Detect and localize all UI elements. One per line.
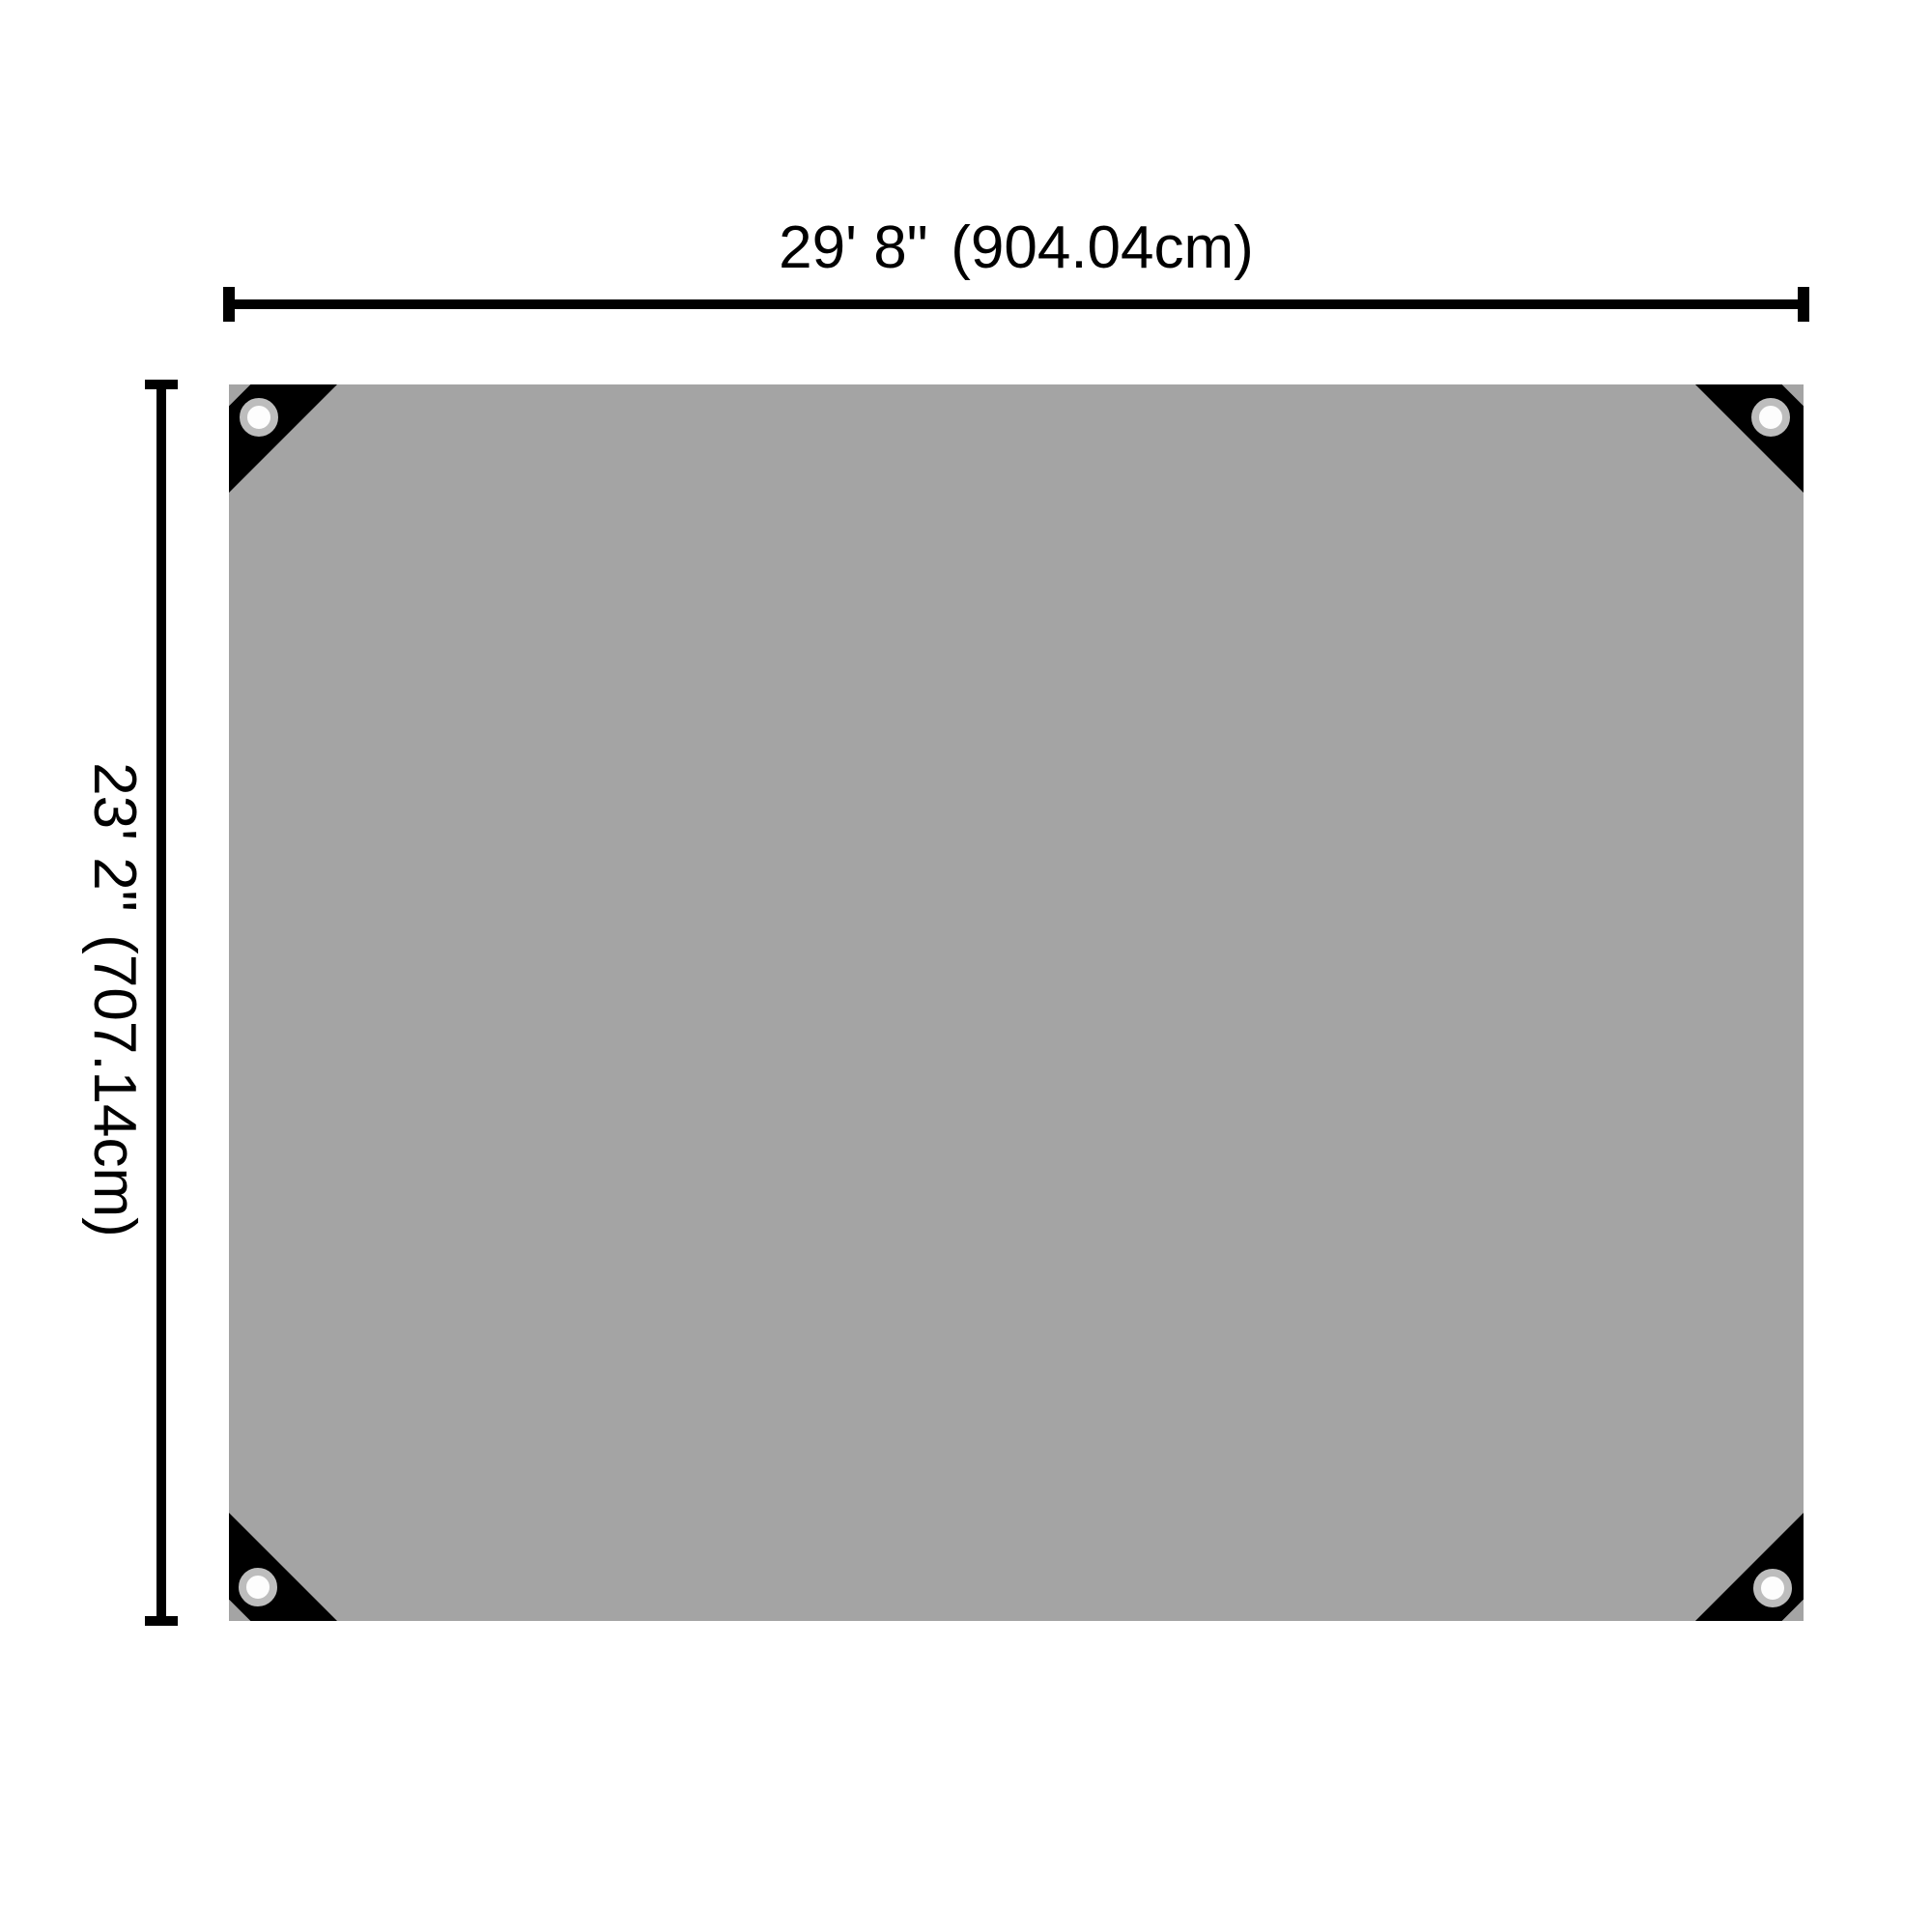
tarp-dimension-diagram: { "theme": { "bg": "#ffffff", "ink": "#0… [0, 0, 1932, 1932]
tarp-rectangle [229, 384, 1804, 1621]
height-imperial-value: 23' 2" [81, 762, 148, 912]
width-imperial-value: 29' 8" [779, 214, 928, 281]
width-dimension-label: 29' 8"(904.04cm) [229, 218, 1804, 278]
width-dimension-tick-left [223, 287, 235, 322]
grommet-icon-top-right [1751, 398, 1790, 437]
grommet-icon-top-left [240, 398, 278, 437]
grommet-icon-bottom-right [1753, 1569, 1792, 1607]
height-metric-value: (707.14cm) [81, 934, 148, 1237]
height-dimension-line [156, 384, 166, 1621]
width-dimension-tick-right [1798, 287, 1809, 322]
height-dimension-tick-top [145, 380, 178, 389]
width-metric-value: (904.04cm) [951, 214, 1254, 281]
height-dimension-label: 23' 2"(707.14cm) [84, 762, 144, 1237]
height-dimension-tick-bottom [145, 1616, 178, 1626]
grommet-icon-bottom-left [239, 1568, 277, 1606]
width-dimension-line [229, 299, 1804, 309]
